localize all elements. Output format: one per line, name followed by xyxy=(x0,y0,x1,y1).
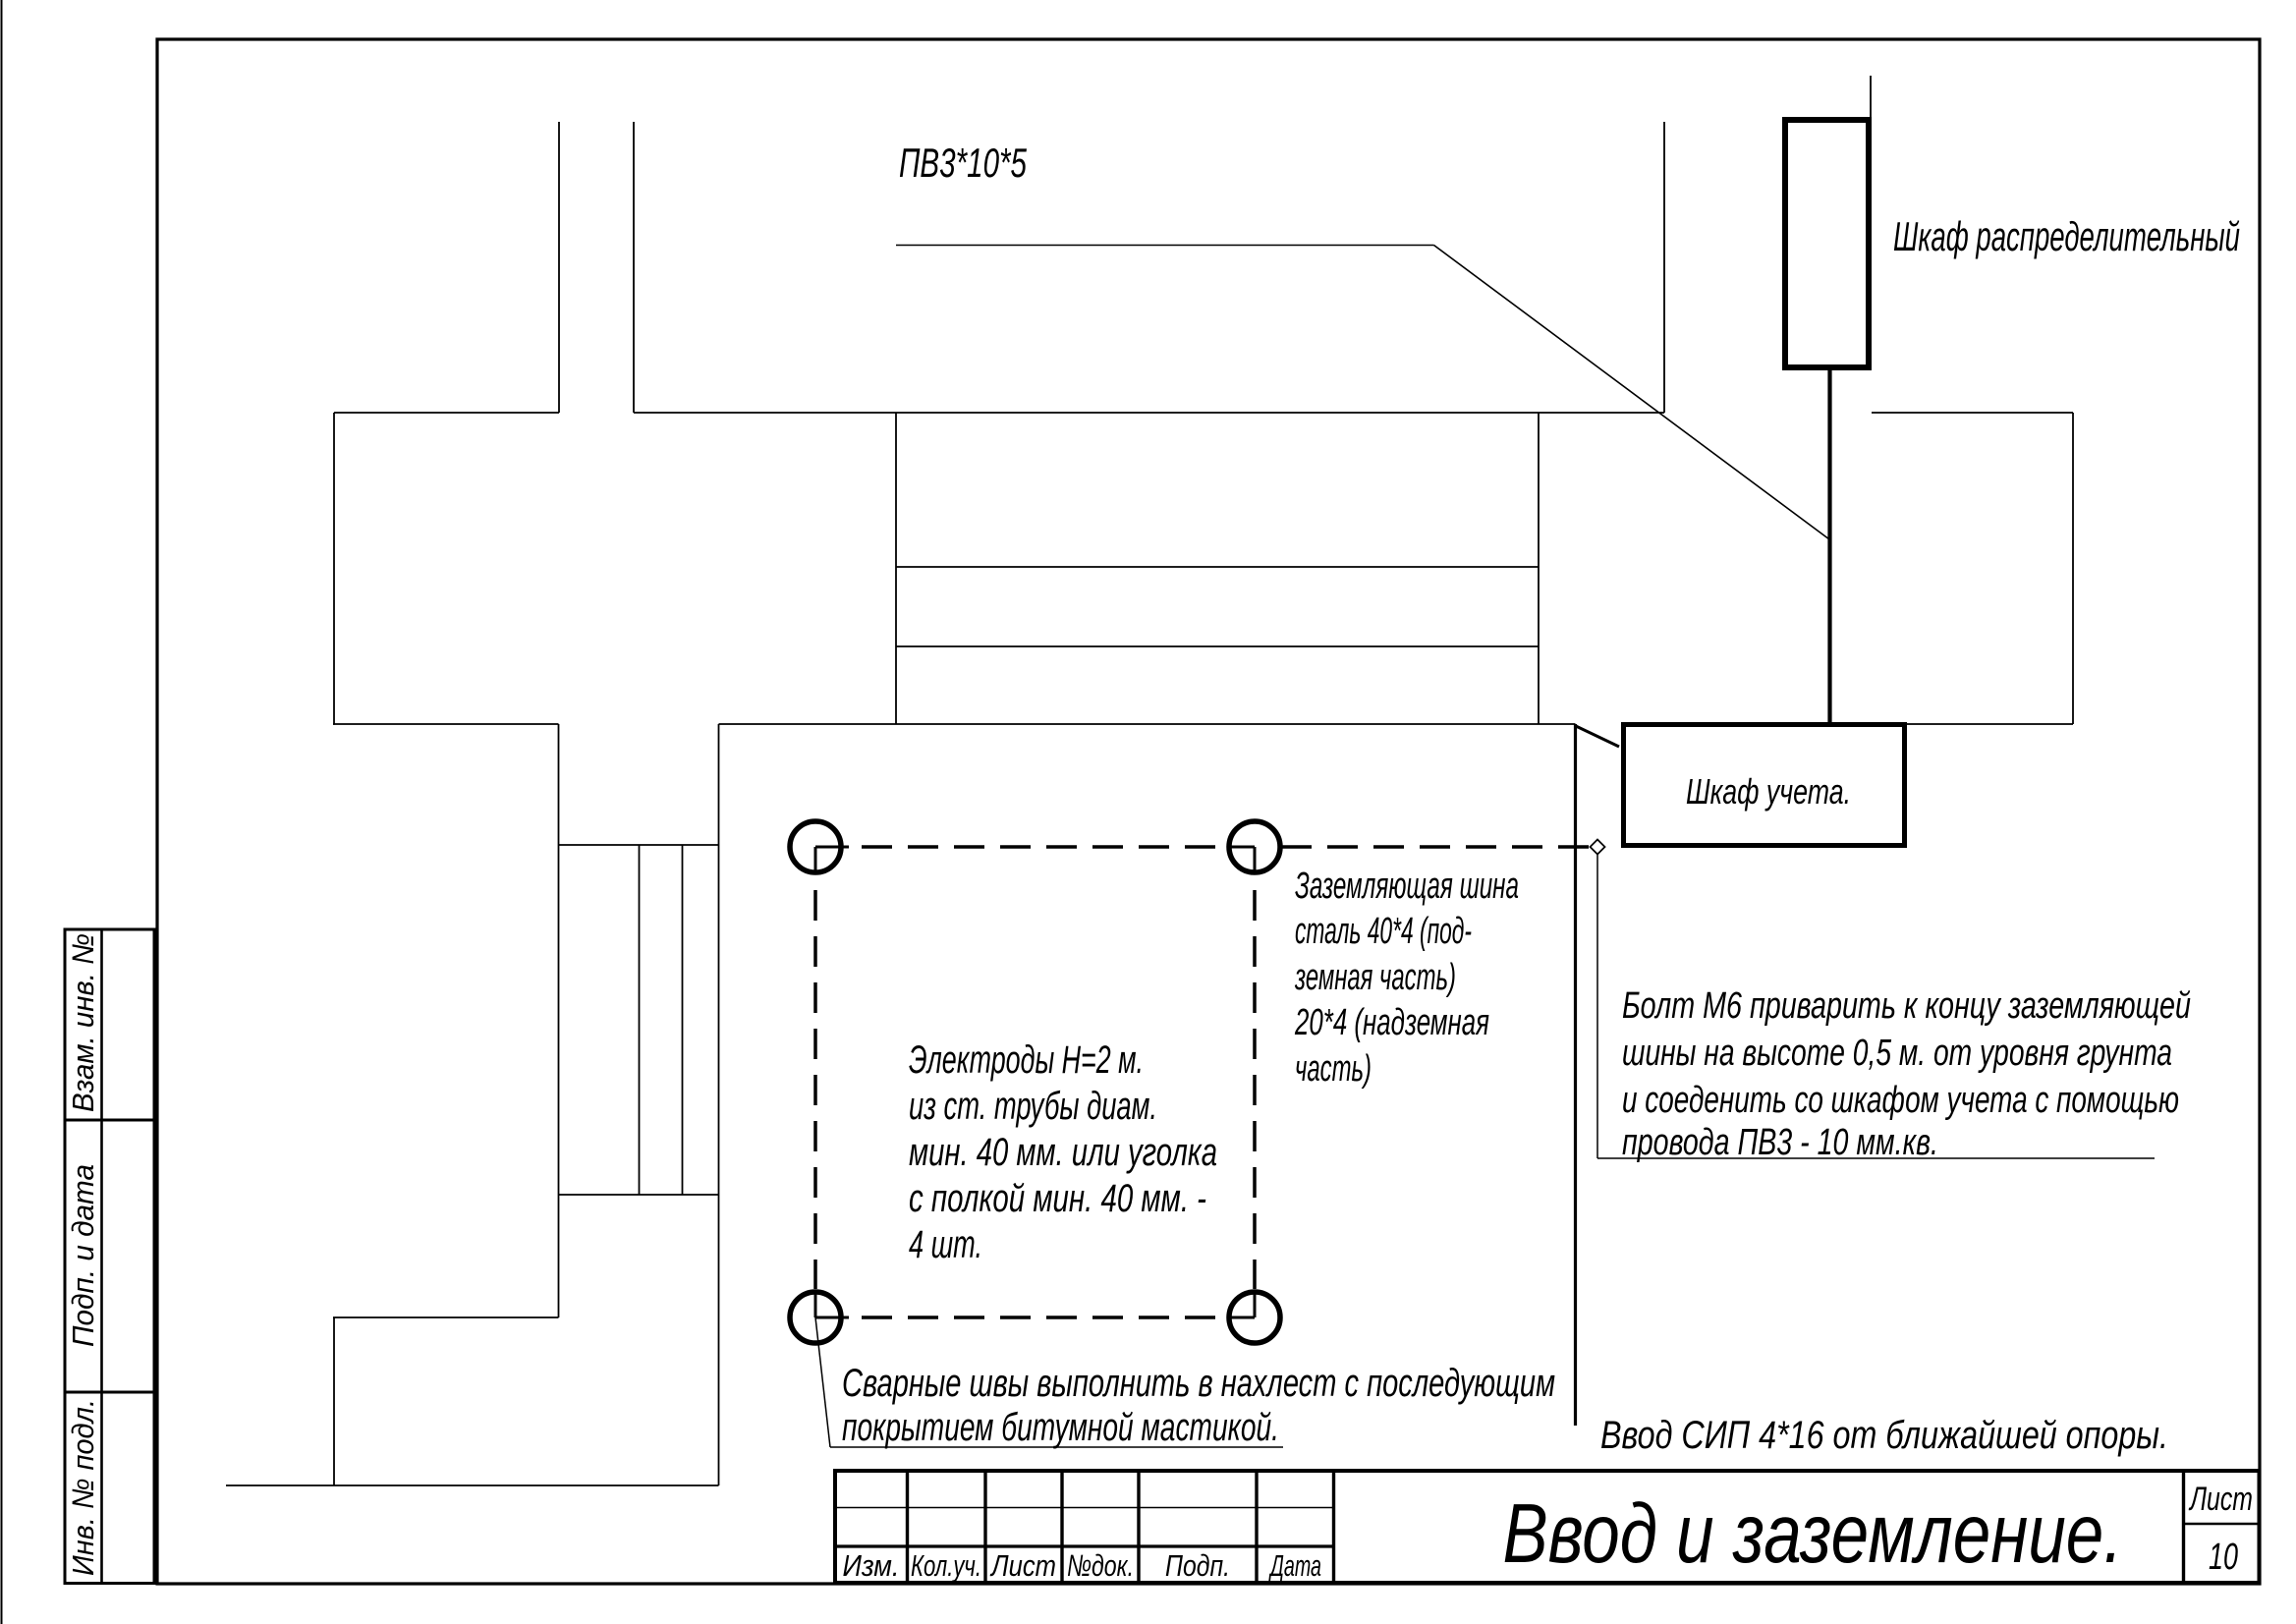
svg-text:и соеденить со шкафом учета с: и соеденить со шкафом учета с помощью xyxy=(1622,1080,2179,1121)
svg-text:земная часть): земная часть) xyxy=(1294,957,1456,998)
svg-text:20*4 (надземная: 20*4 (надземная xyxy=(1294,1002,1489,1043)
svg-text:Подп.: Подп. xyxy=(1165,1548,1230,1583)
svg-text:шины на высоте 0,5 м. от уровн: шины на высоте 0,5 м. от уровня грунта xyxy=(1622,1033,2172,1074)
svg-text:сталь 40*4 (под-: сталь 40*4 (под- xyxy=(1295,911,1472,952)
svg-text:Лист: Лист xyxy=(989,1548,1056,1583)
svg-text:Ввод СИП 4*16 от ближайшей опо: Ввод СИП 4*16 от ближайшей опоры. xyxy=(1600,1414,2168,1457)
svg-text:Шкаф учета.: Шкаф учета. xyxy=(1686,771,1851,812)
svg-text:Дата: Дата xyxy=(1268,1548,1321,1583)
svg-text:Кол.уч.: Кол.уч. xyxy=(911,1548,981,1583)
svg-text:4 шт.: 4 шт. xyxy=(909,1223,982,1266)
svg-text:Электроды Н=2 м.: Электроды Н=2 м. xyxy=(909,1038,1144,1082)
svg-text:часть): часть) xyxy=(1295,1048,1372,1090)
svg-text:Шкаф распределительный: Шкаф распределительный xyxy=(1893,213,2240,259)
svg-text:провода ПВ3 - 10 мм.кв.: провода ПВ3 - 10 мм.кв. xyxy=(1622,1122,1938,1163)
svg-text:ПВ3*10*5: ПВ3*10*5 xyxy=(899,140,1027,186)
svg-text:мин. 40 мм. или уголка: мин. 40 мм. или уголка xyxy=(909,1131,1217,1174)
svg-text:Лист: Лист xyxy=(2189,1481,2253,1518)
svg-text:покрытием битумной мастикой.: покрытием битумной мастикой. xyxy=(842,1406,1279,1449)
svg-text:из ст. трубы диам.: из ст. трубы диам. xyxy=(909,1085,1157,1128)
svg-text:Инв. № подл.: Инв. № подл. xyxy=(66,1399,100,1576)
svg-text:Ввод и заземление.: Ввод и заземление. xyxy=(1503,1487,2123,1581)
svg-text:Изм.: Изм. xyxy=(843,1548,900,1583)
svg-text:№док.: №док. xyxy=(1067,1548,1134,1583)
svg-text:с полкой мин. 40 мм. -: с полкой мин. 40 мм. - xyxy=(909,1177,1206,1220)
svg-text:Взам. инв. №: Взам. инв. № xyxy=(66,933,100,1112)
svg-text:Болт М6 приварить к концу зазе: Болт М6 приварить к концу заземляющей xyxy=(1622,985,2191,1027)
svg-text:Заземляющая шина: Заземляющая шина xyxy=(1295,866,1519,907)
svg-text:10: 10 xyxy=(2209,1537,2238,1578)
svg-text:Подп. и дата: Подп. и дата xyxy=(66,1164,100,1347)
svg-text:Сварные швы выполнить в нахлес: Сварные швы выполнить в нахлест с послед… xyxy=(842,1362,1555,1405)
